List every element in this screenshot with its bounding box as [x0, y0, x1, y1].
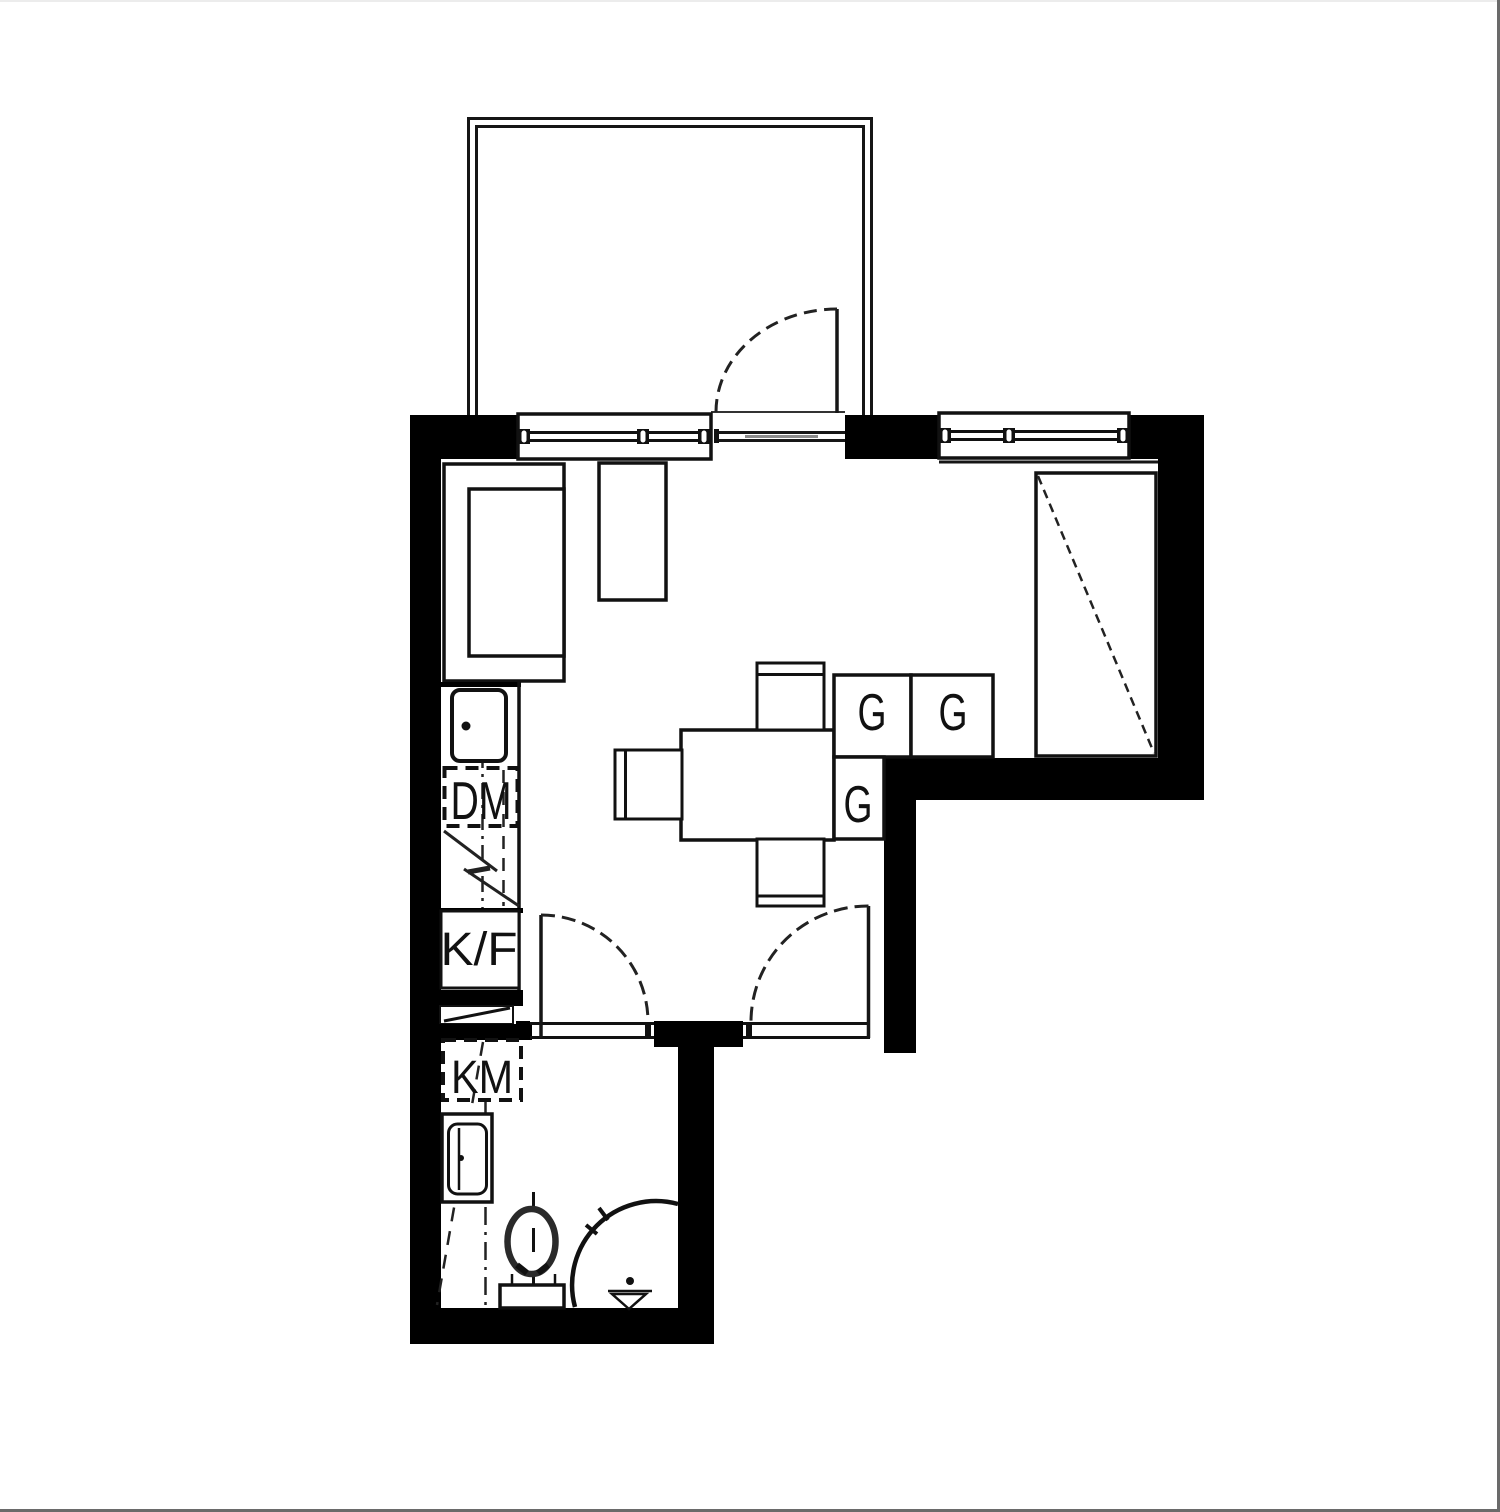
- svg-text:KM: KM: [451, 1050, 513, 1103]
- svg-text:G: G: [938, 684, 967, 742]
- svg-text:G: G: [843, 776, 872, 834]
- svg-text:G: G: [857, 684, 886, 742]
- svg-text:K/F: K/F: [440, 922, 517, 975]
- svg-text:DM: DM: [450, 772, 511, 831]
